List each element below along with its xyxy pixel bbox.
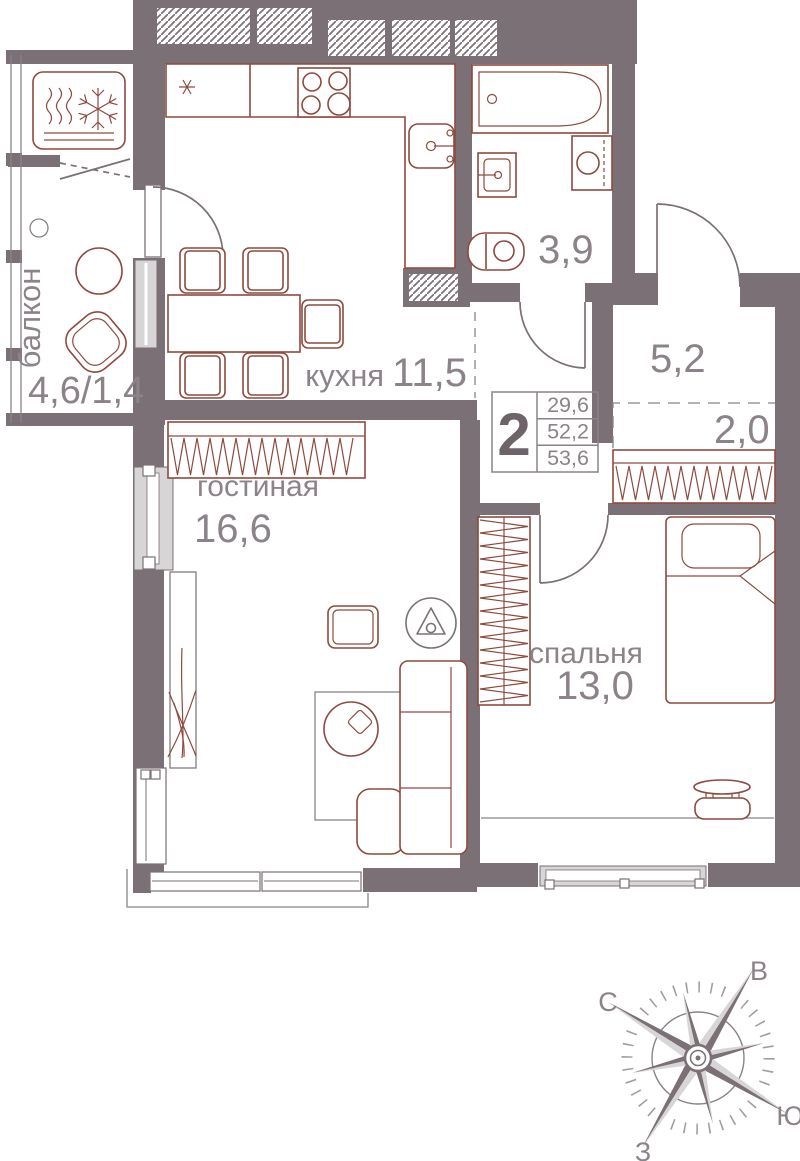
kitchen-label: кухня11,5	[305, 351, 467, 395]
window-bedroom-south	[540, 866, 706, 889]
hallway-area: 5,2	[650, 337, 706, 381]
stove	[298, 68, 350, 117]
window-living-south	[127, 869, 368, 907]
compass-south-label: Ю	[776, 1101, 800, 1131]
compass-rose-icon: С В Ю З	[598, 956, 800, 1161]
chair	[243, 353, 288, 398]
niche-wardrobe	[613, 450, 775, 503]
washing-machine	[572, 136, 612, 190]
bathroom-door	[520, 302, 585, 368]
bedroom-door	[540, 515, 608, 583]
sofa	[357, 661, 467, 854]
floor-plan: балкон 4,6/1,4 кухня11,5 гостиная 16,6 с…	[0, 0, 800, 1161]
chair	[243, 248, 288, 293]
kitchen-sink	[409, 124, 455, 168]
compass-east-label: В	[750, 956, 768, 986]
bedroom-area: 13,0	[556, 664, 634, 708]
air-conditioner	[33, 72, 125, 149]
chair	[180, 353, 225, 398]
compass-north-label: С	[598, 987, 618, 1017]
living-area-total: 29,6	[547, 393, 589, 417]
bedside-stool	[694, 780, 750, 819]
bathroom-sink	[478, 153, 516, 197]
window-living-lower	[136, 768, 166, 864]
toilet	[468, 233, 524, 270]
kitchen-duct	[403, 268, 470, 307]
bedroom-wardrobe	[478, 517, 530, 705]
entrance-door	[657, 204, 740, 287]
area-total: 52,2	[547, 420, 589, 444]
wardrobe-niche-area: 2,0	[714, 408, 770, 452]
chair	[302, 300, 343, 348]
bed	[666, 517, 775, 703]
living-area: 16,6	[194, 507, 272, 551]
compass-west-label: З	[635, 1137, 651, 1161]
room-wardrobe-niche	[613, 450, 775, 503]
window-balcony-living	[135, 260, 157, 348]
area-total-with-balcony: 53,6	[547, 446, 589, 470]
window-living-upper	[134, 465, 173, 570]
balcony-chair	[59, 305, 132, 378]
coffee-table	[324, 702, 378, 756]
rooms-count-badge: 2	[497, 401, 530, 468]
living-label: гостиная	[197, 470, 319, 503]
bathtub	[472, 65, 608, 133]
armchair	[328, 606, 378, 648]
balcony-area: 4,6/1,4	[28, 370, 144, 412]
balcony-label: балкон	[12, 268, 47, 369]
dining-table	[168, 295, 300, 352]
balcony-table	[76, 248, 122, 294]
info-box: 2 29,6 52,2 53,6	[492, 392, 598, 472]
floor-lamp-icon	[406, 598, 456, 648]
bathroom-area: 3,9	[538, 228, 594, 272]
chair	[180, 248, 225, 293]
room-kitchen	[166, 64, 455, 398]
balcony-fixture	[30, 219, 48, 237]
